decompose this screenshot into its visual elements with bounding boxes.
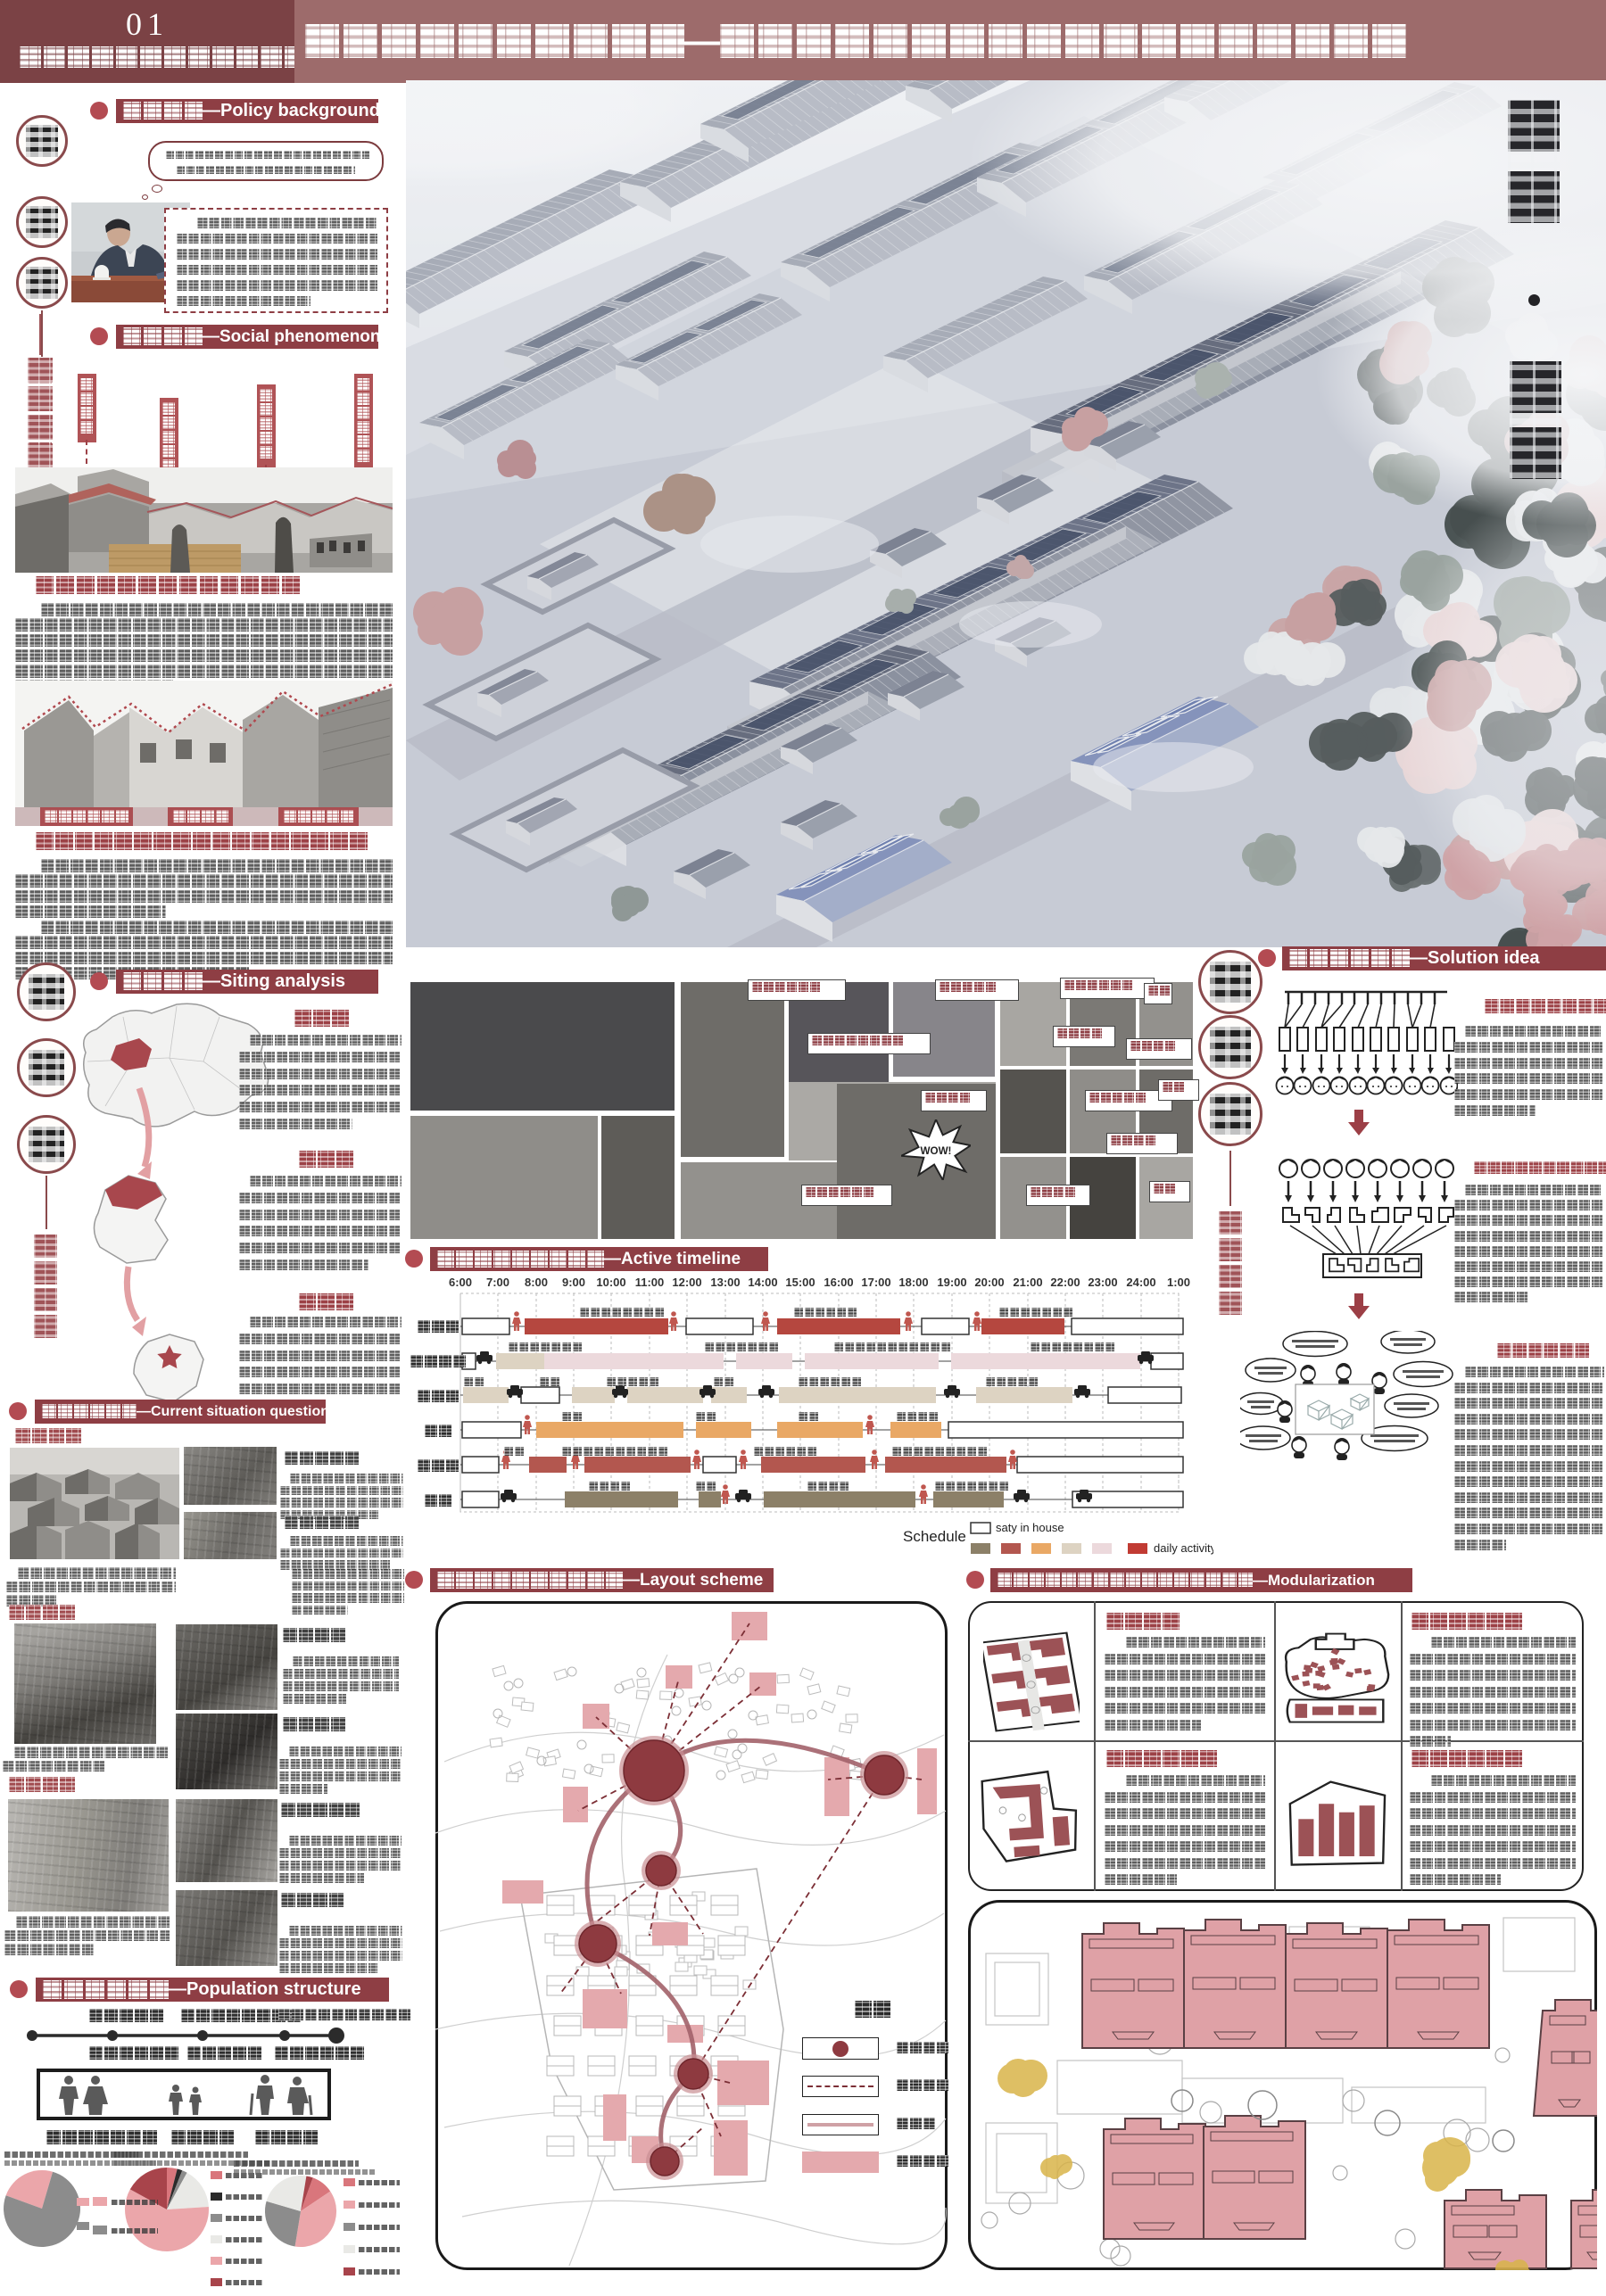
svg-text:9:00: 9:00	[562, 1276, 585, 1289]
svg-text:1:00: 1:00	[1167, 1276, 1190, 1289]
svg-text:12:00: 12:00	[672, 1276, 701, 1289]
svg-text:21:00: 21:00	[1013, 1276, 1042, 1289]
svg-text:11:00: 11:00	[635, 1276, 665, 1289]
svg-text:18:00: 18:00	[898, 1276, 928, 1289]
svg-text:6:00: 6:00	[449, 1276, 472, 1289]
svg-text:16:00: 16:00	[824, 1276, 853, 1289]
svg-text:8:00: 8:00	[525, 1276, 548, 1289]
svg-text:7:00: 7:00	[486, 1276, 509, 1289]
svg-text:14:00: 14:00	[748, 1276, 777, 1289]
svg-text:24:00: 24:00	[1126, 1276, 1155, 1289]
svg-text:15:00: 15:00	[785, 1276, 815, 1289]
svg-text:13:00: 13:00	[710, 1276, 740, 1289]
svg-text:23:00: 23:00	[1088, 1276, 1117, 1289]
svg-text:22:00: 22:00	[1050, 1276, 1080, 1289]
svg-text:saty in house: saty in house	[996, 1521, 1064, 1534]
svg-text:Schedule: Schedule	[903, 1528, 966, 1545]
svg-text:20:00: 20:00	[974, 1276, 1004, 1289]
svg-text:daily activity: daily activity	[1154, 1541, 1213, 1555]
svg-text:19:00: 19:00	[937, 1276, 966, 1289]
svg-text:WOW!: WOW!	[921, 1145, 952, 1157]
svg-text:17:00: 17:00	[861, 1276, 890, 1289]
svg-text:10:00: 10:00	[596, 1276, 625, 1289]
